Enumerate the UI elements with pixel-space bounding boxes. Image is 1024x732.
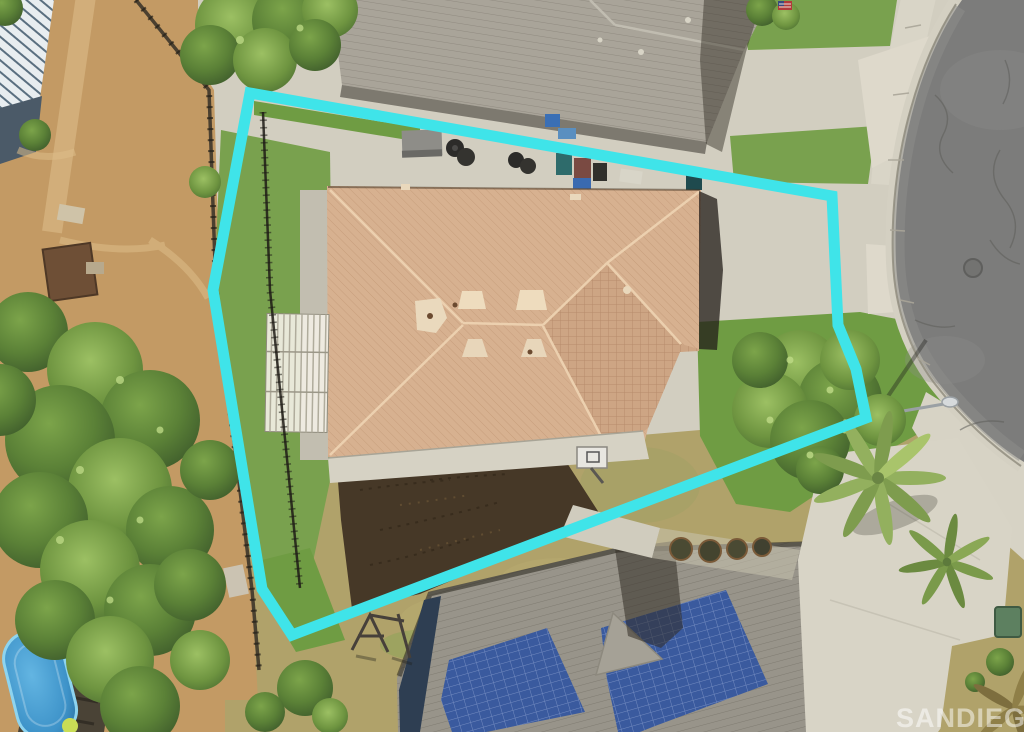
roof-vent — [598, 38, 603, 43]
backboard — [577, 447, 607, 468]
bush — [19, 119, 51, 151]
planter-pot — [699, 540, 721, 562]
roof-vent-small — [570, 194, 581, 200]
blue-bin-small — [573, 178, 591, 189]
tree-canopy — [180, 25, 240, 85]
street-light-head — [942, 397, 958, 407]
tire-hub — [452, 145, 458, 151]
vent-opening — [427, 313, 433, 319]
grass-strip-neighbor — [730, 126, 876, 184]
teal-trash-bin[interactable] — [556, 153, 572, 175]
manhole-cover — [964, 259, 982, 277]
storage-container-shadow — [402, 149, 442, 157]
tree-canopy — [732, 332, 788, 388]
blue-bin — [545, 114, 560, 127]
roof-vent — [516, 290, 547, 310]
aerial-property-photo: SANDIEGO|MLS — [0, 0, 1024, 732]
palm-crown — [872, 472, 884, 484]
dark-bin — [593, 163, 607, 181]
roof-vent-small — [623, 286, 631, 294]
planter-pot — [670, 538, 692, 560]
vent-dot — [528, 350, 533, 355]
vent-dot — [453, 303, 458, 308]
roof-vent — [458, 291, 486, 309]
bush — [189, 166, 221, 198]
tree-canopy — [245, 692, 285, 732]
tire — [457, 148, 475, 166]
palm-crown — [943, 558, 952, 567]
shed-item — [86, 262, 104, 274]
blue-tote — [558, 128, 576, 139]
aerial-scene — [0, 0, 1024, 732]
planter-pot — [727, 539, 747, 559]
roof-vent — [638, 49, 644, 55]
asphalt-patch — [905, 336, 985, 384]
shrub — [986, 648, 1014, 676]
tree-canopy — [170, 630, 230, 690]
tire — [520, 158, 536, 174]
tree-canopy — [154, 549, 226, 621]
roof-vent-small — [401, 184, 410, 190]
planter-pot — [753, 538, 771, 556]
tree-canopy — [180, 440, 240, 500]
utility-box — [995, 607, 1021, 637]
maroon-bin — [574, 158, 591, 178]
roof-vent — [685, 17, 691, 23]
mls-watermark: SANDIEGO|MLS — [896, 703, 1024, 732]
